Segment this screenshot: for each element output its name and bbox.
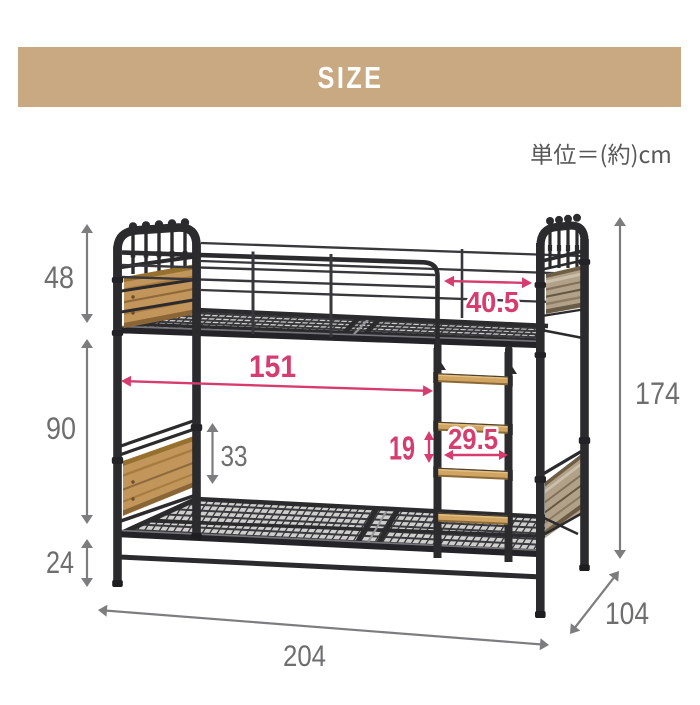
svg-text:151: 151	[249, 348, 296, 384]
svg-text:19: 19	[389, 430, 415, 467]
svg-text:90: 90	[46, 410, 76, 446]
svg-text:24: 24	[46, 544, 74, 580]
svg-text:174: 174	[635, 375, 680, 411]
svg-text:204: 204	[283, 640, 326, 673]
svg-text:SIZE: SIZE	[318, 60, 384, 95]
svg-text:48: 48	[44, 259, 74, 295]
svg-text:33: 33	[221, 441, 248, 473]
svg-text:104: 104	[605, 595, 649, 631]
svg-text:29.5: 29.5	[448, 424, 498, 456]
svg-text:40.5: 40.5	[466, 287, 519, 319]
